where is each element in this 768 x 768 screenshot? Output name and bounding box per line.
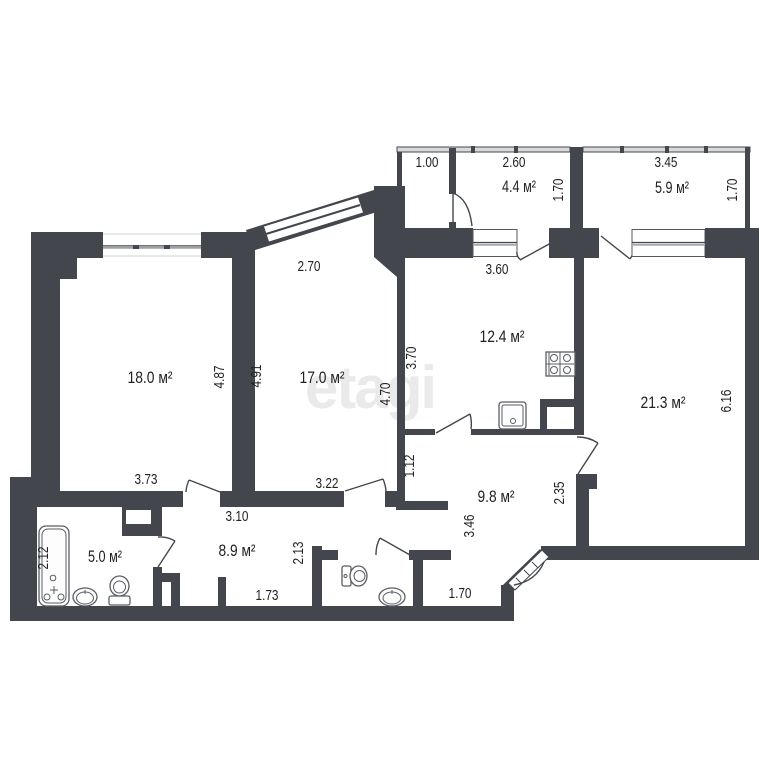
- svg-text:4.91: 4.91: [249, 365, 265, 388]
- svg-text:4.87: 4.87: [212, 366, 228, 389]
- svg-text:3.45: 3.45: [655, 155, 678, 171]
- svg-text:12.4 м²: 12.4 м²: [480, 328, 525, 346]
- svg-text:8.9 м²: 8.9 м²: [219, 542, 256, 560]
- svg-text:6.16: 6.16: [719, 390, 735, 413]
- svg-text:3.10: 3.10: [226, 509, 249, 525]
- svg-text:9.8 м²: 9.8 м²: [478, 488, 515, 506]
- svg-text:1.70: 1.70: [449, 586, 472, 602]
- svg-text:3.73: 3.73: [135, 472, 158, 488]
- svg-text:18.0 м²: 18.0 м²: [128, 369, 173, 387]
- svg-text:4.4 м²: 4.4 м²: [502, 178, 536, 196]
- svg-text:2.60: 2.60: [503, 155, 526, 171]
- svg-text:21.3 м²: 21.3 м²: [641, 394, 686, 412]
- svg-text:3.70: 3.70: [404, 347, 420, 370]
- svg-text:2.13: 2.13: [291, 542, 307, 565]
- svg-text:2.12: 2.12: [36, 547, 52, 570]
- svg-text:3.60: 3.60: [486, 262, 509, 278]
- svg-text:1.73: 1.73: [256, 588, 279, 604]
- svg-text:3.22: 3.22: [316, 476, 339, 492]
- svg-text:5.0 м²: 5.0 м²: [88, 548, 122, 566]
- svg-text:3.46: 3.46: [462, 515, 478, 538]
- svg-text:1.12: 1.12: [402, 455, 418, 478]
- svg-text:1.00: 1.00: [416, 155, 439, 171]
- svg-text:2.35: 2.35: [552, 482, 568, 505]
- svg-text:2.70: 2.70: [298, 259, 321, 275]
- svg-text:4.70: 4.70: [378, 383, 394, 406]
- svg-text:1.70: 1.70: [551, 179, 567, 202]
- svg-text:1.70: 1.70: [725, 179, 741, 202]
- svg-text:5.9 м²: 5.9 м²: [655, 179, 689, 197]
- svg-text:17.0 м²: 17.0 м²: [300, 369, 345, 387]
